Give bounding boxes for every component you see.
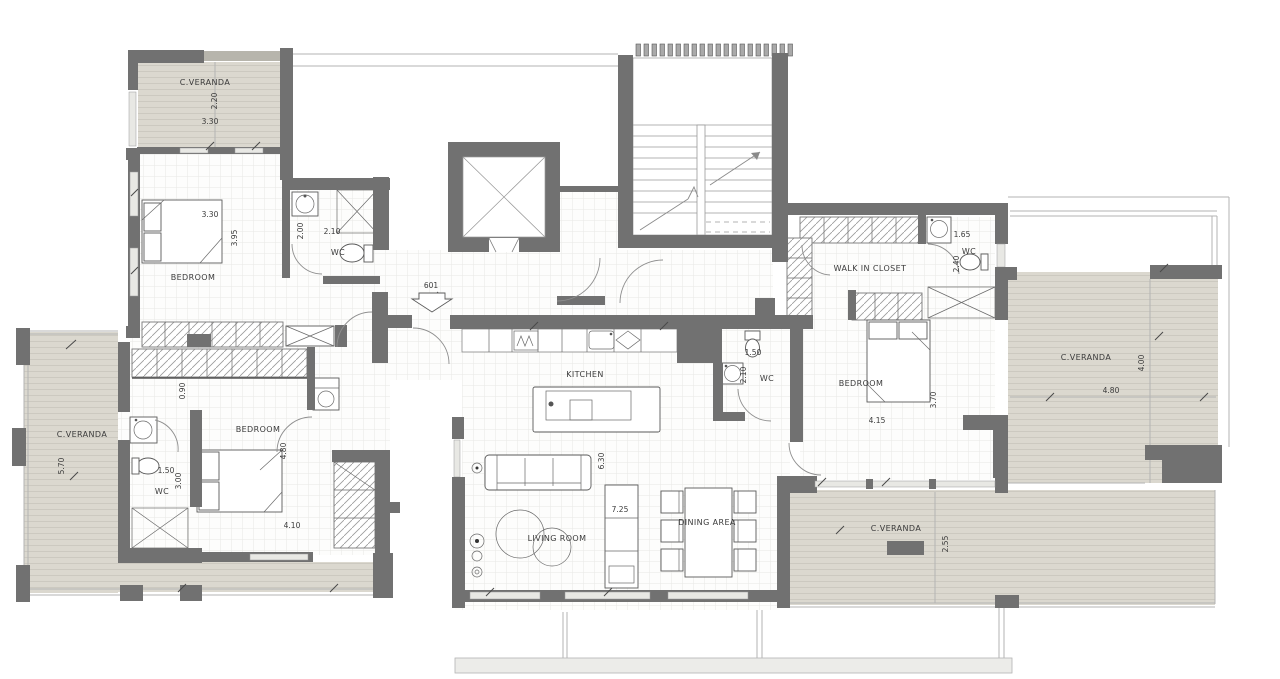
deck-bottom bbox=[790, 490, 1215, 605]
bed-icon-right bbox=[867, 320, 930, 402]
dim-bedroom-bottom-left-depth: 4.80 bbox=[279, 442, 288, 459]
planter-icon bbox=[887, 541, 924, 555]
dim-veranda-top-left-depth: 2.20 bbox=[210, 92, 219, 109]
room-label-wc-top-right: WC bbox=[962, 247, 976, 256]
wardrobe-closet-left bbox=[787, 238, 812, 320]
dim-bedroom-right-width: 4.15 bbox=[869, 416, 886, 425]
room-label-veranda-bottom: C.VERANDA bbox=[871, 524, 922, 533]
louver-strip bbox=[636, 44, 793, 56]
floor-plan: C.VERANDA 2.20 3.30 BEDROOM 3.30 3.95 WC… bbox=[0, 0, 1280, 679]
kitchen-counter bbox=[462, 329, 677, 352]
dim-wc-left-depth: 3.00 bbox=[174, 472, 183, 489]
dim-corridor-width: 0.90 bbox=[178, 382, 187, 399]
cabinet-x-icon bbox=[286, 326, 334, 346]
elevator-shaft bbox=[448, 142, 560, 252]
staircase bbox=[633, 58, 772, 235]
dim-wc-kitchen-width: 1.50 bbox=[745, 348, 762, 357]
room-label-veranda-left: C.VERANDA bbox=[57, 430, 108, 439]
deck-left bbox=[24, 332, 118, 593]
dim-veranda-left-depth: 5.70 bbox=[57, 457, 66, 474]
room-label-walk-in-closet: WALK IN CLOSET bbox=[834, 264, 907, 273]
tv-unit-icon bbox=[605, 485, 638, 588]
dim-bedroom-top-left-width: 3.30 bbox=[202, 210, 219, 219]
dining-table-icon bbox=[661, 488, 756, 577]
deck-left-bottom bbox=[118, 562, 390, 592]
dim-bedroom-bottom-left-width: 4.10 bbox=[284, 521, 301, 530]
dim-wc-top-right-width: 1.65 bbox=[954, 230, 971, 239]
bottom-terrace-band bbox=[455, 658, 1012, 673]
room-label-dining-area: DINING AREA bbox=[678, 518, 736, 527]
room-label-kitchen: KITCHEN bbox=[566, 370, 603, 379]
room-label-wc-left: WC bbox=[155, 487, 169, 496]
room-label-bedroom-bottom-left: BEDROOM bbox=[236, 425, 281, 434]
room-label-bedroom-right: BEDROOM bbox=[839, 379, 884, 388]
dim-wc-top-right-depth: 2.40 bbox=[952, 255, 961, 272]
room-label-veranda-top-left: C.VERANDA bbox=[180, 78, 231, 87]
dim-bedroom-top-left-depth: 3.95 bbox=[230, 229, 239, 246]
dim-veranda-right-width: 4.80 bbox=[1103, 386, 1120, 395]
dim-wc-top-depth: 2.00 bbox=[296, 222, 305, 239]
room-label-bedroom-top-left: BEDROOM bbox=[171, 273, 216, 282]
sofa-icon bbox=[485, 455, 591, 490]
unit-number: 601 bbox=[424, 281, 439, 290]
dim-wc-left-width: 1.50 bbox=[158, 466, 175, 475]
kitchen-island bbox=[533, 387, 660, 432]
dim-wc-top-width: 2.10 bbox=[324, 227, 341, 236]
wardrobe-corridor-bottom bbox=[132, 349, 307, 378]
wardrobe-closet-bottom bbox=[852, 293, 922, 320]
wardrobe-corridor-top bbox=[142, 322, 283, 347]
wardrobe-bedroom-bottom-left bbox=[334, 462, 375, 548]
floor-plan-drawing: C.VERANDA 2.20 3.30 BEDROOM 3.30 3.95 WC… bbox=[0, 0, 1280, 679]
dim-bedroom-right-depth: 3.70 bbox=[929, 391, 938, 408]
dim-living-room-depth: 6.30 bbox=[597, 452, 606, 469]
dim-veranda-top-left-width: 3.30 bbox=[202, 117, 219, 126]
wardrobe-closet-top bbox=[800, 217, 922, 243]
dim-wc-kitchen-depth: 2.10 bbox=[739, 366, 748, 383]
room-label-wc-top: WC bbox=[331, 248, 345, 257]
room-label-wc-kitchen: WC bbox=[760, 374, 774, 383]
dim-living-room-width: 7.25 bbox=[612, 505, 629, 514]
deck-top-left bbox=[138, 62, 280, 148]
room-label-living-room: LIVING ROOM bbox=[528, 534, 587, 543]
bed-icon-bottom-left bbox=[197, 450, 282, 512]
dim-veranda-bottom-depth: 2.55 bbox=[941, 535, 950, 552]
washing-machine-icon bbox=[313, 378, 339, 410]
room-label-veranda-right: C.VERANDA bbox=[1061, 353, 1112, 362]
dim-veranda-right-depth: 4.00 bbox=[1137, 354, 1146, 371]
